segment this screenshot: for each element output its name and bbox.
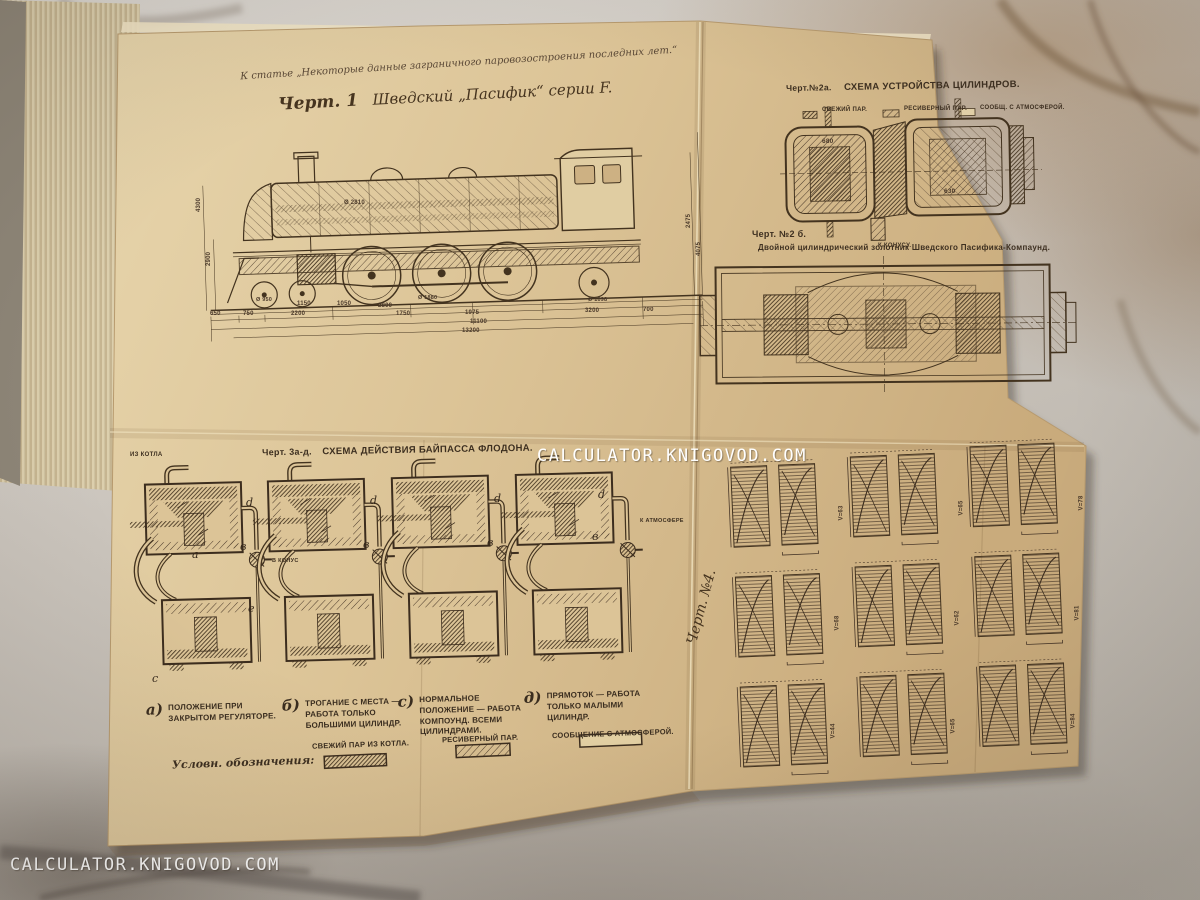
fig3-caption-block-b: б) ТРОГАНИЕ С МЕСТА — РАБОТА ТОЛЬКО БОЛЬ… xyxy=(282,696,405,732)
fig3-letter-b-4: в xyxy=(592,530,598,543)
fig3-caption-text: СХЕМА ДЕЙСТВИЯ БАЙПАССА ФЛОДОНА. xyxy=(322,443,533,458)
fig4-ann-1: V=65 xyxy=(958,501,964,516)
fig3-caption-b-letter: б) xyxy=(282,696,301,732)
fig4-ann-6: V=44 xyxy=(830,724,836,739)
fig2b-caption-text: Двойной цилиндрический золотник Шведског… xyxy=(758,243,1050,252)
dim-700: 700 xyxy=(643,307,654,313)
fig4-ann-3: V=68 xyxy=(834,616,840,631)
fig3-letter-d-2: d xyxy=(370,494,377,507)
fig2a-dim-680: 680 xyxy=(822,138,833,145)
dim-2900: 2900 xyxy=(206,252,212,266)
dim-1150: 1150 xyxy=(297,301,311,307)
fig4-ann-5: V=81 xyxy=(1074,606,1080,621)
fig1-caption-prefix: Черт. 1 xyxy=(278,91,359,115)
dim-650: 650 xyxy=(210,311,221,317)
fig4-ann-2: V=78 xyxy=(1078,496,1084,511)
dim-boiler-2810: Ø 2810 xyxy=(344,200,365,206)
dim-wheel-1880: Ø 1880 xyxy=(418,295,437,301)
fig3-caption-c-letter: с) xyxy=(397,692,415,739)
dim-1050: 1050 xyxy=(337,301,351,307)
dim-2200: 2200 xyxy=(291,311,305,317)
dim-750: 750 xyxy=(243,311,254,317)
dim-4300: 4300 xyxy=(196,198,202,212)
fig4-ann-4: V=62 xyxy=(954,611,960,626)
fig3-cone-label: В КОНУС xyxy=(272,558,299,564)
dim-3200: 3200 xyxy=(585,308,599,314)
fig3-caption-block-a: а) ПОЛОЖЕНИЕ ПРИ ЗАКРЫТОМ РЕГУЛЯТОРЕ. xyxy=(146,700,277,725)
watermark-center: CALCULATOR.KNIGOVOD.COM xyxy=(537,446,807,466)
fig3-caption-d-text: ПРЯМОТОК — РАБОТА ТОЛЬКО МАЛЫМИ ЦИЛИНДР. xyxy=(547,688,667,723)
fig3-caption-c-text: НОРМАЛЬНОЕ ПОЛОЖЕНИЕ — РАБОТА КОМПОУНД. … xyxy=(419,692,530,738)
fig3-letter-b-2: в xyxy=(363,538,369,551)
watermark-bottom-left: CALCULATOR.KNIGOVOD.COM xyxy=(10,855,280,875)
fig3-caption-block-d: д) ПРЯМОТОК — РАБОТА ТОЛЬКО МАЛЫМИ ЦИЛИН… xyxy=(524,688,667,724)
fig3-letter-c-1: с xyxy=(152,672,158,685)
dim-wheel-1098: Ø 1098 xyxy=(588,297,607,303)
fig3-inlet-label: ИЗ КОТЛА xyxy=(130,452,163,458)
fig3-caption-prefix: Черт. 3а-д. xyxy=(262,446,312,457)
fig3-caption-b-text: ТРОГАНИЕ С МЕСТА — РАБОТА ТОЛЬКО БОЛЬШИМ… xyxy=(305,696,404,731)
fig3-letter-d-1: d xyxy=(246,496,253,509)
fig3-letter-b-3: в xyxy=(487,536,493,549)
fig3-caption-d-letter: д) xyxy=(524,688,543,724)
dim-wheel-950: Ø 950 xyxy=(256,297,272,303)
dim-13200: 13200 xyxy=(462,328,480,334)
fig3-letter-d-4: d xyxy=(598,488,605,501)
fig2a-legend-atmosphere: СООБЩ. С АТМОСФЕРОЙ. xyxy=(980,105,1065,111)
fig2a-caption-prefix: Черт.№2а. xyxy=(786,82,832,93)
dim-4075: 4075 xyxy=(696,242,702,256)
fig3-letter-e-1: е xyxy=(248,602,255,615)
fig3-atmosphere-label: К АТМОСФЕРЕ xyxy=(640,518,684,524)
fig4-ann-7: V=65 xyxy=(950,719,956,734)
dim-1750: 1750 xyxy=(396,311,410,317)
fig3-letter-b-1: в xyxy=(240,540,246,553)
dim-2800: 2800 xyxy=(378,303,392,309)
photo-of-foldout-plate: К статье „Некоторые данные заграничного … xyxy=(0,0,1200,900)
fig3-caption-a-text: ПОЛОЖЕНИЕ ПРИ ЗАКРЫТОМ РЕГУЛЯТОРЕ. xyxy=(168,700,276,724)
fig4-ann-8: V=84 xyxy=(1070,714,1076,729)
fig3-letter-a-1: а xyxy=(192,548,199,561)
dim-1975: 1975 xyxy=(465,310,479,316)
fig3-letter-d-3: d xyxy=(494,492,501,505)
fig2a-legend-fresh: СВЕЖИЙ ПАР. xyxy=(822,107,867,113)
dim-11100: 11100 xyxy=(470,319,487,325)
fig2a-legend-receiver: РЕСИВЕРНЫЙ ПАР. xyxy=(904,106,967,112)
fig3-caption-a-letter: а) xyxy=(146,700,164,725)
fig4-ann-0: V=63 xyxy=(838,506,844,521)
fig2a-dim-630: 630 xyxy=(944,188,955,195)
fig2b-caption-prefix: Черт. №2 б. xyxy=(752,229,806,239)
dim-2475: 2475 xyxy=(686,214,692,228)
fig2a-caption-text: СХЕМА УСТРОЙСТВА ЦИЛИНДРОВ. xyxy=(844,79,1020,93)
